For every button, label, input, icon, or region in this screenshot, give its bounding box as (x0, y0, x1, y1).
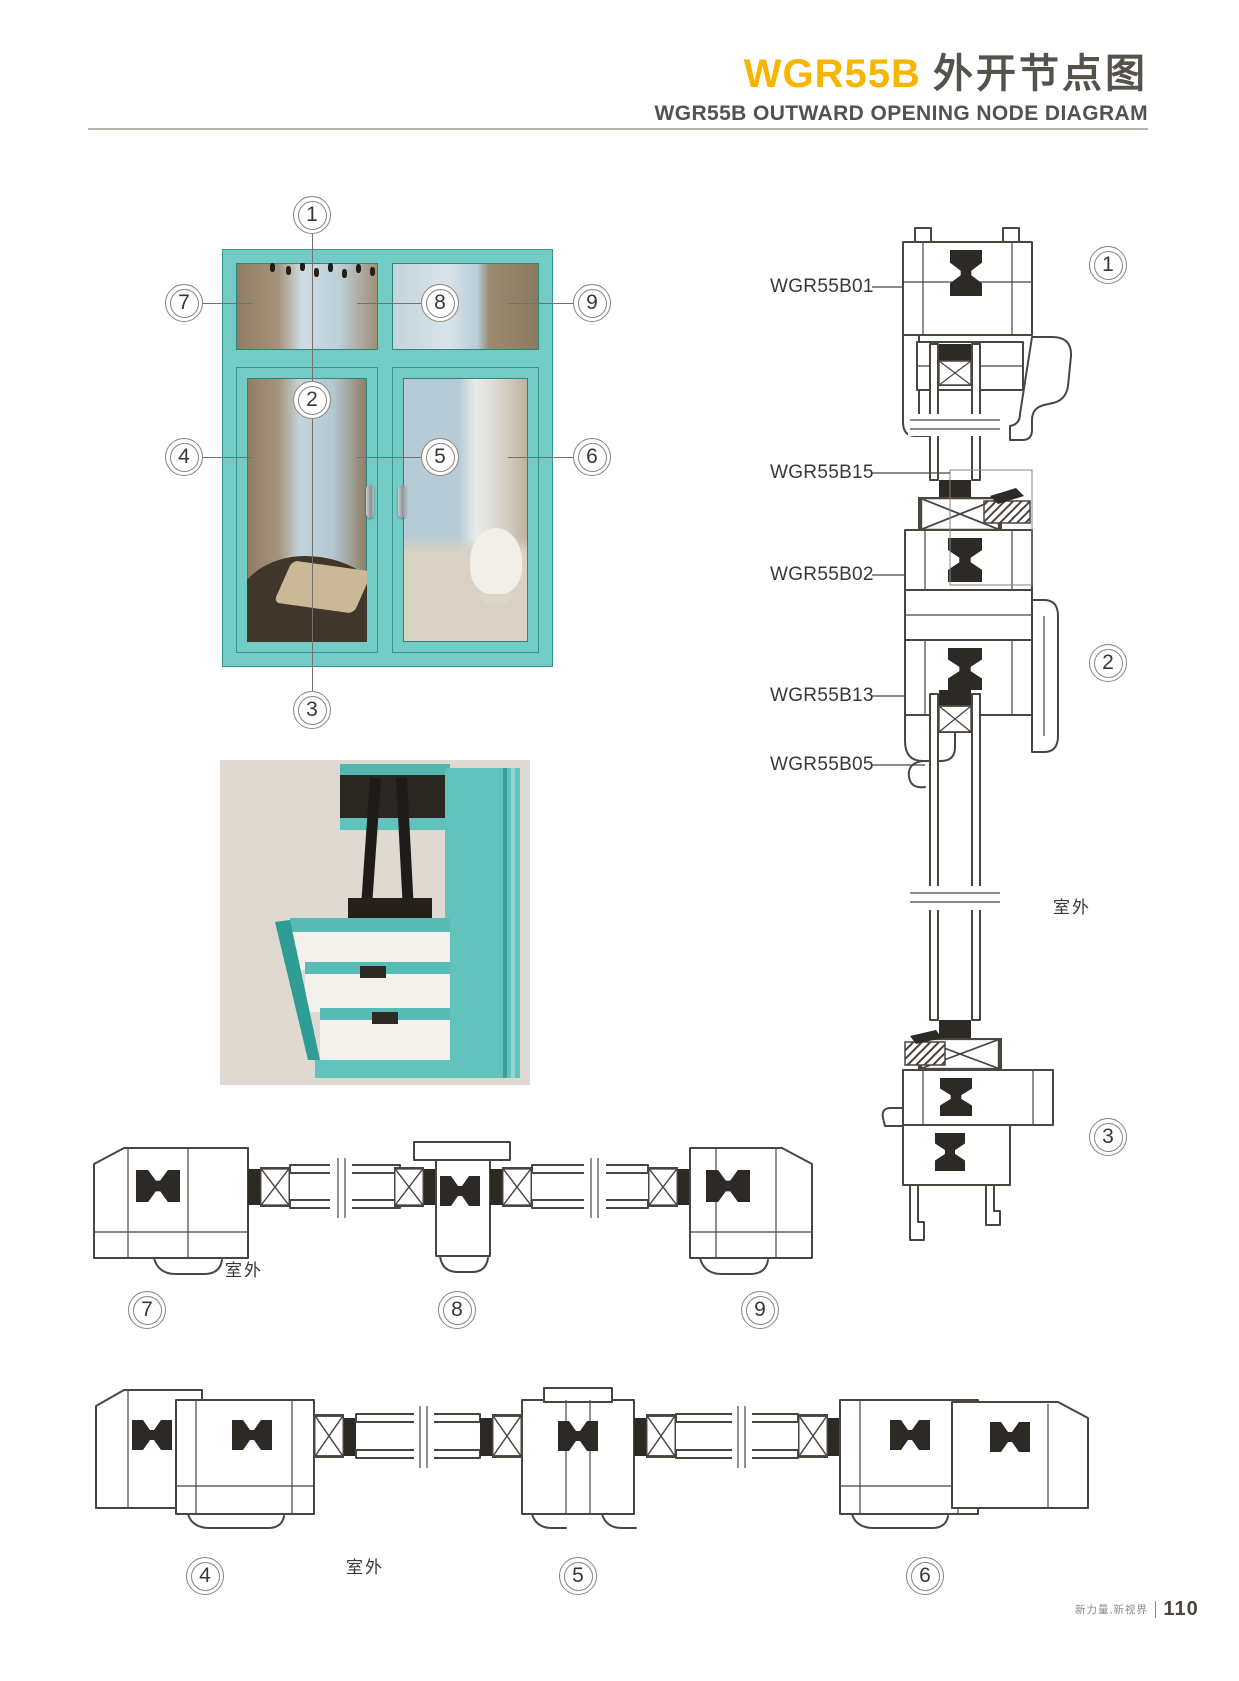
window-pane-top-right (392, 263, 539, 350)
callout-window-4: 4 (165, 438, 203, 476)
callout-section-2: 2 (1089, 644, 1127, 682)
callout-number: 8 (443, 1296, 472, 1325)
page-subtitle: WGR55B OUTWARD OPENING NODE DIAGRAM (0, 103, 1148, 124)
callout-number: 2 (1094, 649, 1123, 678)
page-number: 110 (1163, 1598, 1198, 1621)
callout-section-9: 9 (741, 1291, 779, 1329)
callout-number: 9 (578, 289, 607, 318)
handle-icon (398, 485, 406, 518)
sash-right-glass (403, 378, 528, 642)
part-label-wgr55b13: WGR55B13 (770, 685, 874, 707)
callout-number: 1 (1094, 251, 1123, 280)
callout-section-5: 5 (559, 1557, 597, 1595)
callout-window-7: 7 (165, 284, 203, 322)
model-code: WGR55B (744, 52, 921, 96)
callout-section-1: 1 (1089, 246, 1127, 284)
callout-number: 9 (746, 1296, 775, 1325)
callout-number: 4 (191, 1562, 220, 1591)
outdoor-label-vertical: 室外 (1053, 893, 1091, 918)
callout-section-3: 3 (1089, 1118, 1127, 1156)
callout-number: 3 (1094, 1123, 1123, 1152)
leader-line (203, 303, 253, 304)
callout-window-8: 8 (421, 284, 459, 322)
page-title: WGR55B 外开节点图 (0, 54, 1148, 94)
callout-number: 4 (170, 443, 199, 472)
window-pane-top-left (236, 263, 378, 350)
outdoor-label-top-row: 室外 (225, 1256, 263, 1281)
callout-window-3: 3 (293, 691, 331, 729)
callout-number: 6 (911, 1562, 940, 1591)
callout-window-9: 9 (573, 284, 611, 322)
callout-number: 2 (298, 386, 327, 415)
leader-line (508, 303, 573, 304)
callout-window-1: 1 (293, 196, 331, 234)
leader-line (357, 303, 421, 304)
profile-render-photo (220, 760, 530, 1085)
part-label-wgr55b05: WGR55B05 (770, 754, 874, 776)
callout-number: 1 (298, 201, 327, 230)
title-chinese: 外开节点图 (933, 52, 1148, 96)
callout-number: 5 (564, 1562, 593, 1591)
chair-decor (470, 528, 522, 594)
callout-window-6: 6 (573, 438, 611, 476)
part-label-wgr55b02: WGR55B02 (770, 564, 874, 586)
window-illustration (222, 249, 553, 667)
callout-number: 8 (426, 289, 455, 318)
callout-section-7: 7 (128, 1291, 166, 1329)
part-label-wgr55b15: WGR55B15 (770, 462, 874, 484)
callout-number: 3 (298, 696, 327, 725)
vertical-section-drawing (760, 224, 1140, 1254)
header-rule (88, 128, 1148, 130)
footer-divider (1155, 1601, 1157, 1618)
outdoor-label-bottom-row: 室外 (346, 1553, 384, 1578)
page-footer: 新力量,新视界 110 (1075, 1598, 1199, 1621)
callout-section-8: 8 (438, 1291, 476, 1329)
window-sash-right (392, 367, 539, 653)
callout-section-6: 6 (906, 1557, 944, 1595)
leader-line (203, 457, 253, 458)
callout-number: 6 (578, 443, 607, 472)
catalog-page: WGR55B 外开节点图 WGR55B OUTWARD OPENING NODE… (0, 0, 1239, 1681)
leader-line (357, 457, 421, 458)
callout-window-2: 2 (293, 381, 331, 419)
horizontal-section-top-drawing (88, 1136, 818, 1276)
horizontal-section-bottom-drawing (92, 1376, 1092, 1538)
chandelier-decor (270, 263, 275, 272)
callout-number: 5 (426, 443, 455, 472)
callout-number: 7 (170, 289, 199, 318)
handle-icon (366, 485, 374, 518)
callout-number: 7 (133, 1296, 162, 1325)
footer-slogan: 新力量,新视界 (1075, 1602, 1148, 1617)
leader-line (312, 233, 313, 691)
page-header: WGR55B 外开节点图 WGR55B OUTWARD OPENING NODE… (0, 54, 1148, 124)
leader-line (508, 457, 573, 458)
part-label-wgr55b01: WGR55B01 (770, 276, 874, 298)
callout-section-4: 4 (186, 1557, 224, 1595)
callout-window-5: 5 (421, 438, 459, 476)
